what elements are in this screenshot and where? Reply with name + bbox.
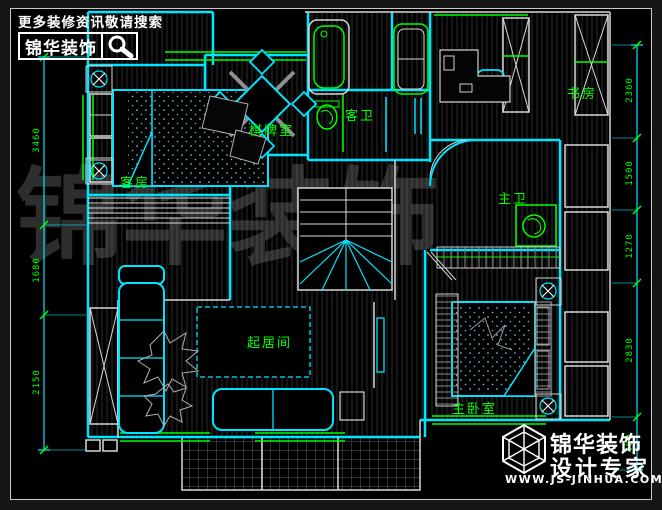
dim-left-3: 2150	[32, 369, 42, 395]
search-box[interactable]: 锦华装饰	[18, 32, 138, 60]
room-label-master-bedroom: 主卧室	[452, 398, 497, 417]
dim-left-2: 1680	[32, 257, 42, 283]
room-label-chess-room: 棋牌室	[249, 120, 294, 139]
room-label-study: 书房	[567, 83, 597, 102]
floorplan-screenshot: 锦华装饰	[0, 0, 662, 510]
room-label-living-room: 起居间	[247, 332, 292, 351]
brand-name: 锦华装饰	[20, 34, 97, 59]
room-label-guest-bath: 客卫	[345, 105, 375, 124]
dim-right-4: 2830	[625, 337, 635, 363]
dim-right-1: 2360	[625, 77, 635, 103]
room-label-guest-room: 客房	[120, 172, 150, 191]
company-logo-icon	[500, 422, 548, 480]
room-label-master-bath: 主卫	[498, 188, 528, 207]
dim-right-3: 1270	[625, 233, 635, 259]
dim-right-2: 1500	[625, 160, 635, 186]
footer-website-url: WWW.JS-JINHUA.COM	[505, 473, 662, 486]
search-icon	[103, 34, 136, 58]
dim-left-1: 3460	[32, 127, 42, 153]
header-tagline: 更多装修资讯敬请搜索	[18, 11, 163, 31]
